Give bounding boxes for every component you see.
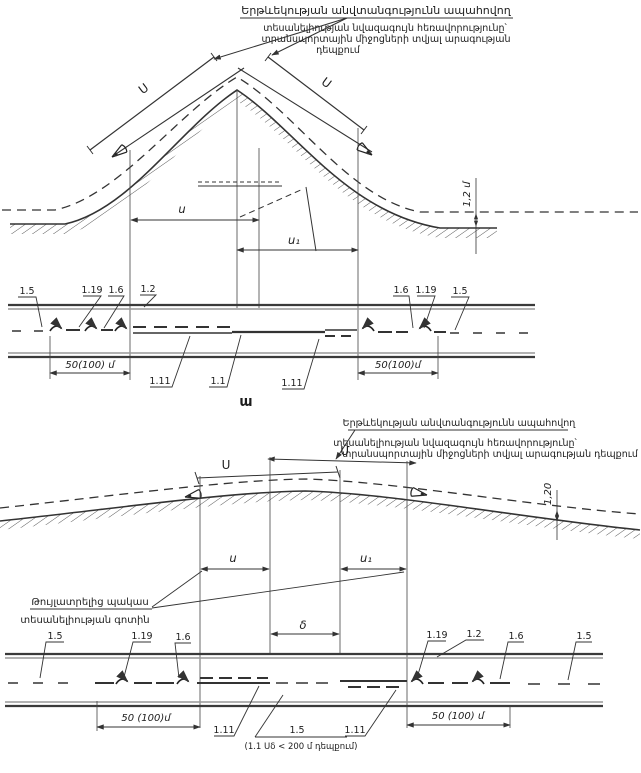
- sight-distance-line-left: [90, 57, 214, 150]
- label-leader: [104, 296, 124, 328]
- label-leader: [40, 642, 64, 678]
- marking-label-1-6: 1.6: [108, 285, 123, 296]
- overtaking-arrow-icon: [85, 326, 97, 331]
- label-leader: [393, 296, 413, 328]
- sight-distance-line-right: [268, 57, 364, 130]
- marking-label-1-11: 1.11: [344, 725, 365, 736]
- approach-dimension-label-left: 50 (100)մ: [121, 713, 172, 724]
- label-leader: [124, 642, 151, 677]
- marking-label-1-5: 1.5: [452, 286, 467, 297]
- caption-a-line1: Երթևեկության անվտանգությունն ապահովող: [241, 4, 511, 17]
- marking-label-1-5: 1.5: [576, 631, 591, 642]
- zone-label-s: ս: [178, 202, 185, 216]
- diagram-a-plan: 1.5 1.19 1.6 1.2 1.6 1.19 1.5 50(100) մ …: [8, 284, 535, 410]
- marking-label-1-5: 1.5: [19, 286, 34, 297]
- overtaking-arrow-icon: [420, 326, 432, 331]
- marking-label-1-6: 1.6: [393, 285, 408, 296]
- overtaking-arrow-icon: [412, 679, 424, 684]
- sight-distance-line-left: [197, 472, 338, 478]
- marking-label-1-5: 1.5: [47, 631, 62, 642]
- caption-a-line3: տրանսպորտային միջոցների տվյալ արագության: [261, 34, 510, 45]
- marking-label-1-2: 1.2: [466, 629, 481, 640]
- marking-label-1-19: 1.19: [131, 631, 152, 642]
- marking-label-1-6: 1.6: [508, 631, 523, 642]
- zone-label-s1: ս₁: [288, 233, 300, 247]
- sight-distance-label-left: Ս: [222, 458, 231, 472]
- observer-eye-icon: [356, 142, 374, 159]
- sight-distance-label-right: Մ: [340, 444, 350, 458]
- label-leader: [79, 296, 101, 327]
- approach-dimension-label-left: 50(100) մ: [65, 360, 116, 371]
- zone-boundary-lines: [130, 90, 358, 380]
- marking-label-1-19: 1.19: [426, 630, 447, 641]
- caption-b-line3: տրանսպորտային միջոցների տվյալ արագության…: [342, 449, 639, 460]
- marking-label-1-11: 1.11: [213, 725, 234, 736]
- eye-height-label: 1,2 մ: [462, 180, 473, 207]
- caption-b-line2: տեսանելիության նվազագույն հեռավորություն…: [333, 438, 577, 449]
- approach-dimension-label-right: 50 (100) մ: [432, 711, 486, 722]
- label-leader: [568, 642, 592, 680]
- label-leader: [417, 296, 435, 328]
- restricted-zone-text-line1: Թույլատրելից պակաս: [31, 597, 148, 608]
- diagram-a-profile: Երթևեկության անվտանգությունն ապահովող տե…: [2, 4, 638, 380]
- label-leader: [500, 642, 524, 679]
- diagram-b-profile: Երթևեկության անվտանգությունն ապահովող տե…: [0, 418, 640, 728]
- diagram-b-plan: 1.5 1.19 1.6 1.19 1.2 1.6 1.5 50 (100)մ …: [5, 629, 603, 752]
- marking-label-1-1: 1.1: [210, 376, 225, 387]
- construction-drop-line: [306, 187, 316, 251]
- label-leader: [18, 297, 42, 327]
- marking-label-1-6: 1.6: [175, 632, 190, 643]
- restricted-zone-text-line2: տեսանելիության գոտին: [20, 615, 149, 626]
- hill-hatching: [10, 90, 497, 238]
- caption-b-line1: Երթևեկության անվտանգությունն ապահովող: [343, 418, 577, 429]
- zone-label-s1: ս₁: [360, 551, 372, 565]
- construction-diagonal: [240, 189, 303, 217]
- marking-label-1-11: 1.11: [281, 378, 302, 389]
- label-leader: [417, 641, 446, 678]
- overtaking-arrow-icon: [116, 679, 128, 684]
- overtaking-arrow-icon: [50, 326, 62, 331]
- road-marking-figure: Երթևեկության անվտանգությունն ապահովող տե…: [0, 0, 641, 773]
- caption-a-line4: դեպքում: [316, 45, 361, 56]
- marking-condition-note: (1.1 Սδ < 200 մ դեպքում): [245, 742, 358, 752]
- figure-label-a: ա: [239, 394, 252, 410]
- scanned-figure-page: Երթևեկության անվտանգությունն ապահովող տե…: [0, 0, 641, 773]
- restricted-zone-leader-right: [152, 572, 404, 608]
- marking-label-1-5: 1.5: [289, 725, 304, 736]
- sight-distance-label-right: Ս: [319, 75, 334, 91]
- sight-distance-label-left: Ս: [136, 81, 151, 97]
- marking-label-1-2: 1.2: [140, 284, 155, 295]
- zone-label-s: ս: [229, 551, 236, 565]
- label-leader: [175, 643, 191, 678]
- gap-label-delta: δ: [299, 618, 306, 632]
- eye-height-label: 1,20: [543, 483, 554, 505]
- approach-dimension-label-right: 50(100)մ: [375, 360, 423, 371]
- overtaking-arrow-icon: [363, 326, 375, 331]
- overtaking-arrow-icon: [177, 679, 189, 684]
- label-leader: [451, 297, 469, 330]
- marking-label-1-19: 1.19: [81, 285, 102, 296]
- marking-label-1-19: 1.19: [415, 285, 436, 296]
- overtaking-arrow-icon: [473, 679, 485, 684]
- overtaking-arrow-icon: [115, 326, 127, 331]
- marking-label-1-11: 1.11: [149, 376, 170, 387]
